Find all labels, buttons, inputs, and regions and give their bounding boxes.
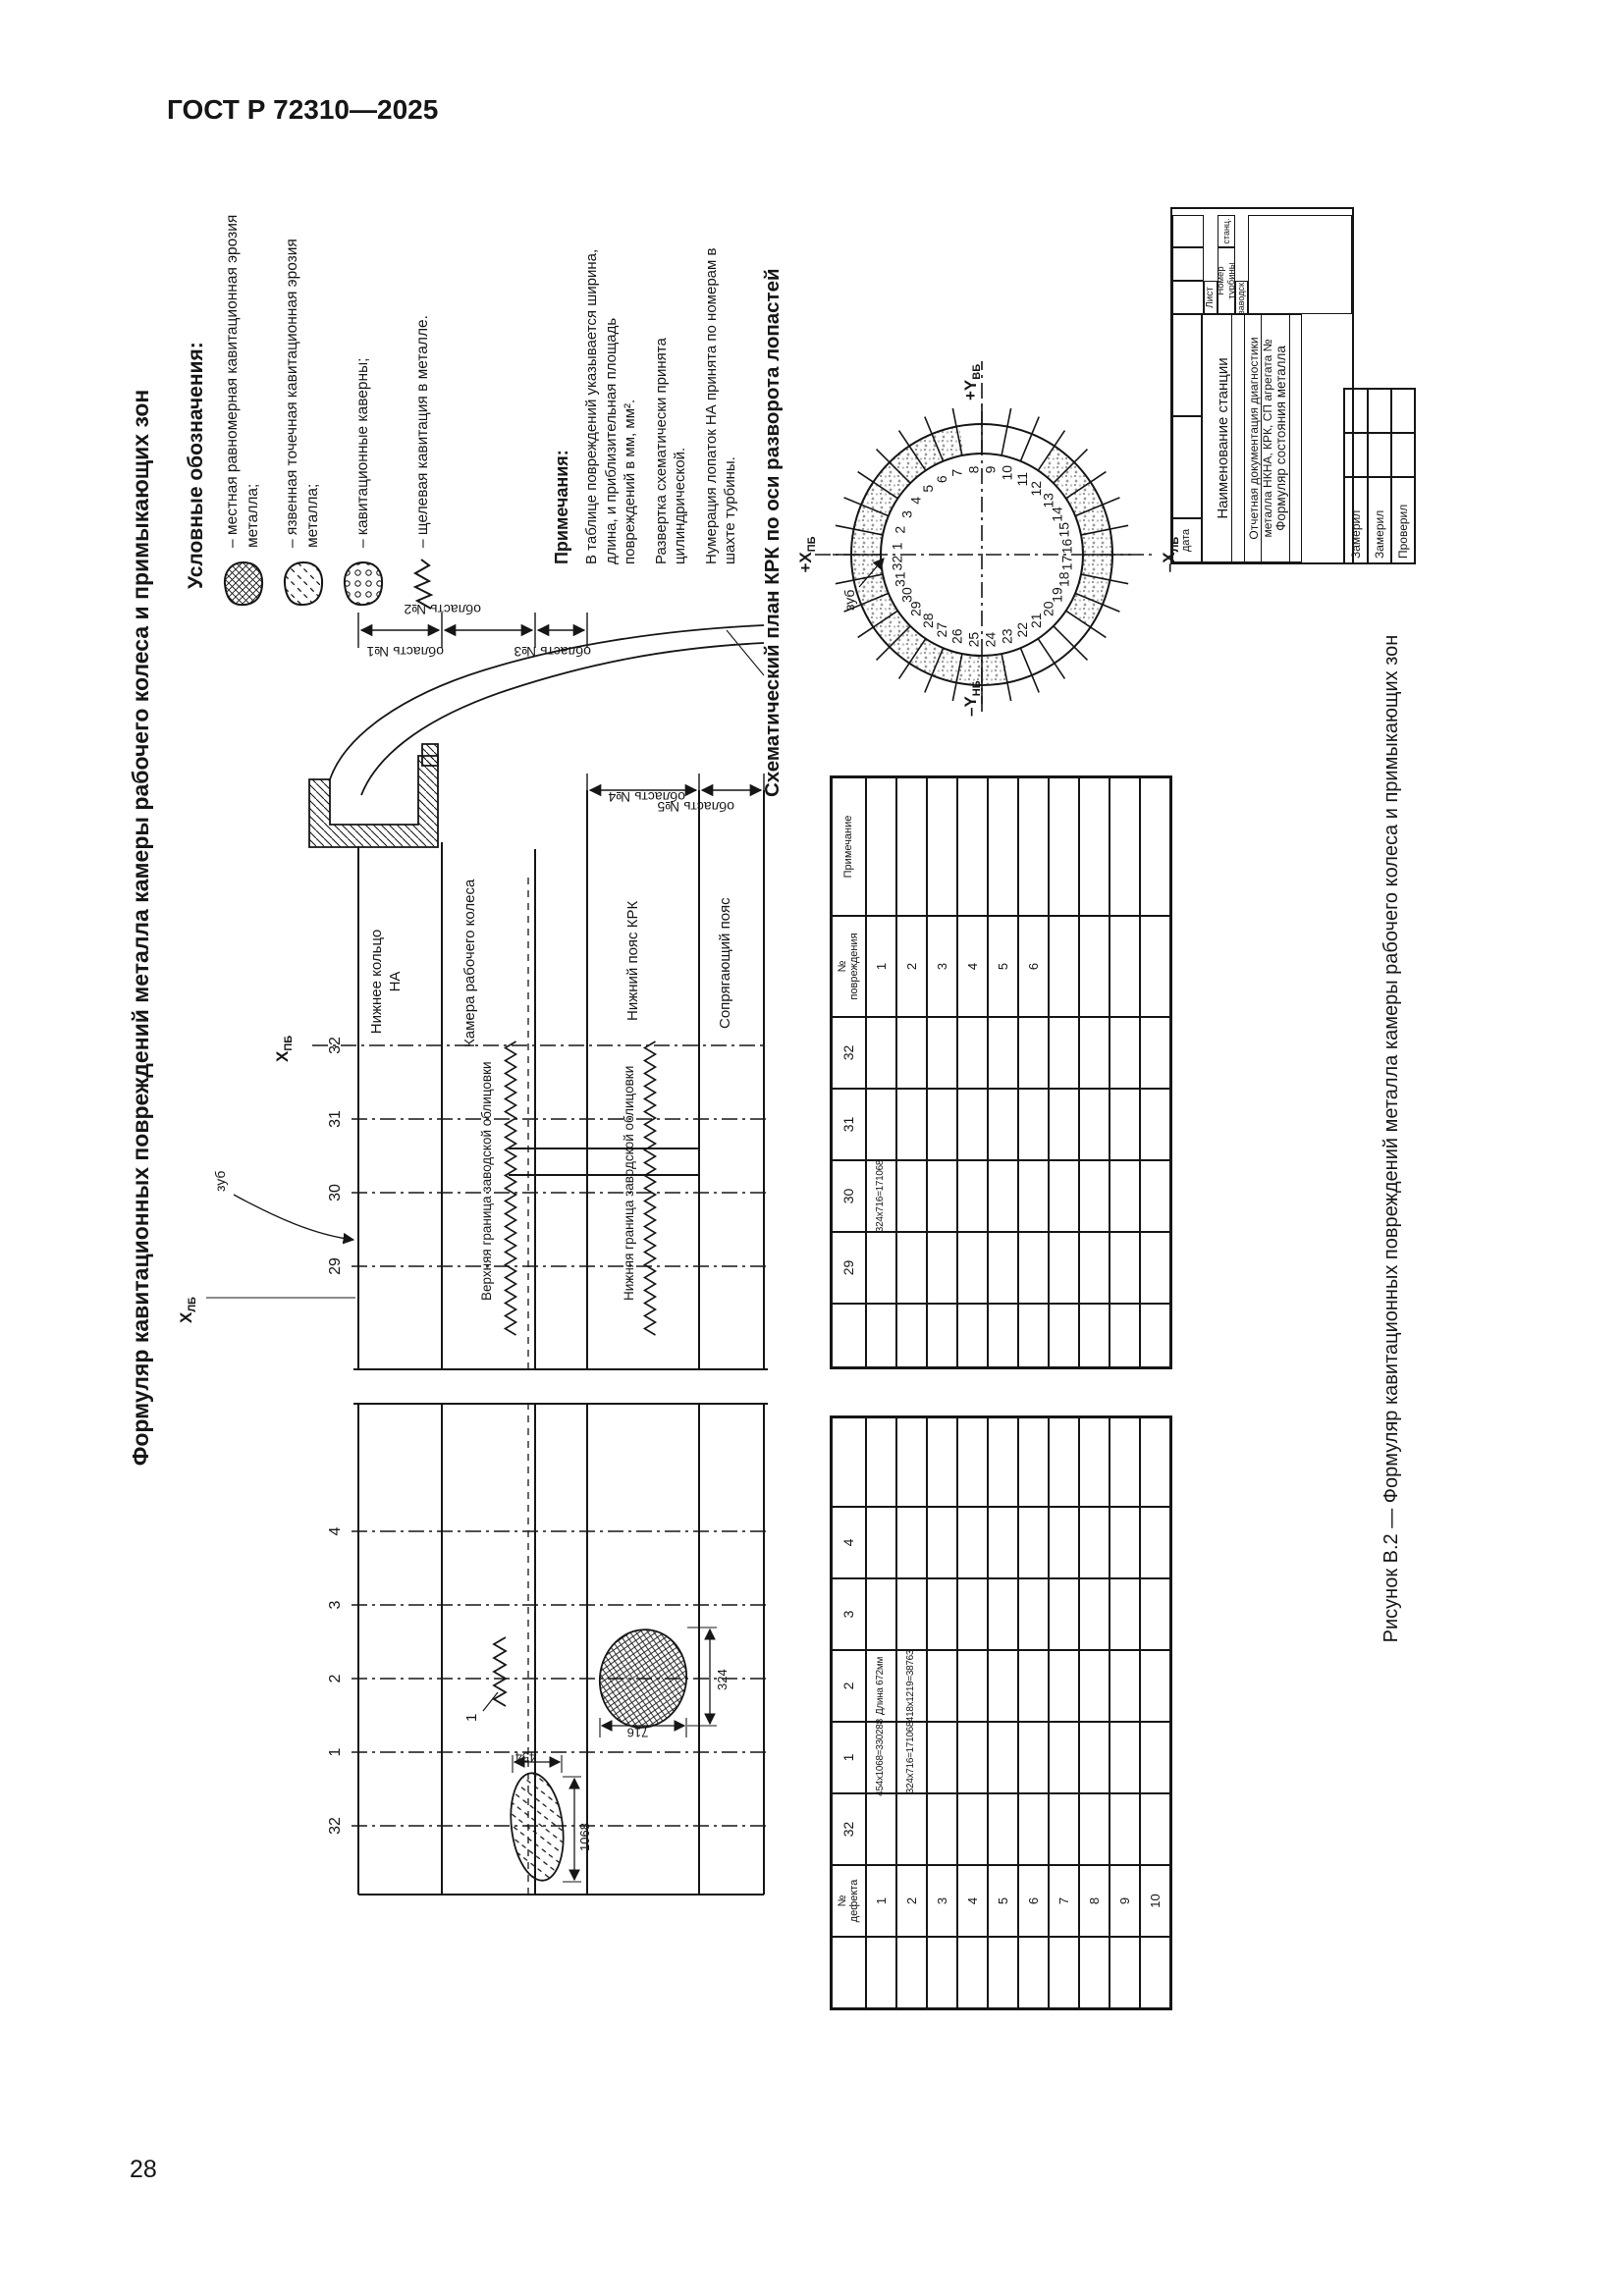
table-cell — [1018, 1160, 1049, 1232]
blade-number: 1 — [327, 1733, 345, 1772]
table-cell — [957, 1793, 988, 1865]
legend-item: – щелевая кавитация в металле. — [402, 198, 445, 611]
table-cell — [1140, 1089, 1170, 1160]
svg-text:+YВБ: +YВБ — [961, 364, 983, 400]
table-cell — [1049, 1017, 1079, 1089]
table-cell — [1079, 916, 1110, 1017]
stamp-empty-cell — [1172, 247, 1204, 281]
table-cell — [1140, 1232, 1170, 1304]
table-cell — [988, 1017, 1018, 1089]
table-cell — [957, 1017, 988, 1089]
dim-1068: 1068 — [577, 1823, 592, 1851]
table-cell — [896, 1937, 927, 2008]
table-cell: 7 — [1049, 1865, 1079, 1937]
table-header-cell: 30 — [832, 1160, 866, 1232]
table-cell — [957, 1722, 988, 1793]
sign-row-label: Замерил — [1344, 477, 1368, 563]
table-cell — [957, 1417, 988, 1507]
table-cell — [1140, 1650, 1170, 1722]
table-cell — [957, 1937, 988, 2008]
legend: Условные обозначения: – местная равномер… — [185, 198, 461, 611]
blade-number: 2 — [327, 1659, 345, 1698]
sign-row-label: Замерил — [1368, 477, 1391, 563]
table-cell — [866, 1017, 896, 1089]
dim-324: 324 — [715, 1669, 730, 1690]
table-cell — [1049, 1160, 1079, 1232]
table-cell — [1079, 1578, 1110, 1650]
band-label-chamber: Камера рабочего колеса — [461, 880, 478, 1047]
stamp-sheet-label: Лист — [1204, 281, 1218, 314]
document-page: ГОСТ Р 72310—2025 28 — [0, 0, 1624, 2296]
table-cell — [1049, 1650, 1079, 1722]
table-cell — [957, 1232, 988, 1304]
crosshatch-blob-icon — [222, 558, 265, 611]
table-cell — [927, 1937, 957, 2008]
ring-blade-number: 15 — [1056, 522, 1071, 538]
sign-empty-cell — [1391, 433, 1415, 477]
table-cell — [1079, 1017, 1110, 1089]
table-cell — [1140, 916, 1170, 1017]
band-label-ring: Нижнее кольцо НА — [368, 923, 406, 1041]
table-header-cell: Примечание — [832, 777, 866, 916]
stamp-zavod-label: заводск. — [1235, 281, 1248, 314]
legend-item-label: – щелевая кавитация в металле. — [413, 315, 434, 548]
ring-blade-number: 21 — [1028, 613, 1044, 628]
legend-item: – местная равномерная кавитационная эроз… — [222, 198, 265, 611]
table-cell — [957, 1160, 988, 1232]
ring-blade-number: 19 — [1050, 587, 1065, 603]
ring-blade-number: 2 — [893, 526, 908, 534]
figure-title: Формуляр кавитационных повреждений метал… — [128, 226, 154, 1629]
table-cell: 6 — [1018, 1865, 1049, 1937]
svg-text:–YНБ: –YНБ — [961, 680, 983, 717]
gost-header: ГОСТ Р 72310—2025 — [167, 94, 438, 126]
table-cell — [1110, 1650, 1140, 1722]
table-cell — [866, 1232, 896, 1304]
dev-axis-left-label: ХЛБ — [177, 1297, 198, 1323]
right-damage-table: 29303132№ поврежденияПримечание324х716=1… — [830, 775, 1172, 1369]
note-item: Нумерация лопаток НА принята по номерам … — [702, 226, 740, 564]
stamp-turbine-label: Номер турбины — [1218, 247, 1235, 314]
table-cell: 1 — [866, 916, 896, 1017]
ring-blade-number: 27 — [934, 622, 949, 638]
title-block: дата Наименование станции Отчетная докум… — [1170, 207, 1354, 564]
table-cell — [1140, 1017, 1170, 1089]
table-cell — [988, 1937, 1018, 2008]
table-cell — [1110, 1160, 1140, 1232]
table-cell — [988, 1722, 1018, 1793]
legend-item-label: – кавитационные каверны; — [353, 357, 374, 548]
stamp-form-label: Формуляр состояния металла — [1261, 314, 1302, 562]
table-cell: 418х1219=38763 — [896, 1650, 927, 1722]
sign-row-label: Проверил — [1391, 477, 1415, 563]
blade-number: 4 — [327, 1512, 345, 1551]
table-cell — [896, 777, 927, 916]
ring-sector-tick — [1020, 648, 1039, 692]
stamp-empty-cell — [1172, 281, 1204, 314]
table-cell — [957, 777, 988, 916]
table-cell — [896, 1232, 927, 1304]
table-cell — [1110, 1089, 1140, 1160]
stamp-empty-cell — [1172, 416, 1202, 518]
dim-716: 716 — [627, 1726, 649, 1740]
ring-blade-number: 9 — [983, 465, 999, 473]
table-cell — [1140, 1722, 1170, 1793]
table-header-cell: 29 — [832, 1232, 866, 1304]
table-cell — [927, 1650, 957, 1722]
table-cell — [927, 777, 957, 916]
table-cell — [988, 1089, 1018, 1160]
zone-label-2: область №2 — [391, 602, 481, 617]
stamp-date-label: дата — [1172, 518, 1202, 562]
zone-label-5: область №5 — [644, 799, 734, 815]
table-cell — [1079, 1507, 1110, 1578]
table-cell — [1049, 1578, 1079, 1650]
table-cell — [1110, 1507, 1140, 1578]
legend-item: – язвенная точечная кавитационная эрозия… — [282, 198, 325, 611]
ring-blade-number: 31 — [893, 571, 908, 587]
defect-callout-1: 1 — [463, 1714, 480, 1722]
damage-blob-a — [505, 1755, 581, 1884]
blade-number: 32 — [327, 1026, 345, 1065]
table-cell — [1110, 1722, 1140, 1793]
table-header-cell: № повреждения — [832, 916, 866, 1017]
table-cell — [1110, 1417, 1140, 1507]
table-cell: 1 — [866, 1865, 896, 1937]
table-cell — [957, 1304, 988, 1367]
table-cell — [1110, 1793, 1140, 1865]
table-cell — [1110, 1937, 1140, 2008]
table-header-cell: 4 — [832, 1507, 866, 1578]
table-cell — [1049, 1507, 1079, 1578]
table-cell — [957, 1650, 988, 1722]
sign-empty-cell — [1391, 389, 1415, 433]
table-cell — [1110, 916, 1140, 1017]
table-cell — [1140, 1793, 1170, 1865]
table-cell: 10 — [1140, 1865, 1170, 1937]
ring-blade-number: 25 — [965, 632, 981, 648]
ring-blade-number: 14 — [1050, 507, 1065, 522]
ring-blade-number: 13 — [1040, 493, 1056, 508]
band-label-mating-belt: Сопрягающий пояс — [717, 897, 733, 1029]
table-cell — [866, 1937, 896, 2008]
table-cell — [988, 1160, 1018, 1232]
ring-blade-number: 1 — [889, 542, 904, 550]
stamp-empty-cell — [1248, 215, 1352, 314]
table-cell: 4 — [957, 1865, 988, 1937]
legend-item-label: – язвенная точечная кавитационная эрозия… — [283, 198, 324, 548]
table-cell: 3 — [927, 916, 957, 1017]
zone-label-3: область №3 — [501, 644, 591, 660]
table-cell — [1110, 777, 1140, 916]
table-header-cell: 1 — [832, 1722, 866, 1793]
table-cell — [1049, 1417, 1079, 1507]
notes: Примечания: В таблице повреждений указыв… — [552, 226, 752, 564]
table-cell — [896, 1578, 927, 1650]
stamp-empty-cell — [1172, 314, 1202, 416]
table-cell — [1140, 1937, 1170, 2008]
table-cell — [1140, 1417, 1170, 1507]
table-cell: Длина 672мм — [866, 1650, 896, 1722]
table-cell — [927, 1793, 957, 1865]
figure-caption: Рисунок В.2 — Формуляр кавитационных пов… — [1380, 432, 1403, 1845]
dev-tooth-label: зуб — [212, 1171, 228, 1192]
table-cell — [896, 1417, 927, 1507]
table-cell — [1018, 1578, 1049, 1650]
table-cell: 3 — [927, 1865, 957, 1937]
table-cell — [1018, 1722, 1049, 1793]
ring-blade-number: 26 — [949, 628, 965, 644]
table-cell — [927, 1722, 957, 1793]
ring-blade-number: 24 — [983, 632, 999, 648]
table-cell — [1079, 1160, 1110, 1232]
upper-facing-boundary-label: Верхняя граница заводской облицовки — [479, 1061, 494, 1301]
table-cell — [896, 1160, 927, 1232]
table-header-cell: 32 — [832, 1017, 866, 1089]
blade-number: 31 — [327, 1099, 345, 1139]
table-cell — [988, 777, 1018, 916]
table-cell — [927, 1507, 957, 1578]
table-cell — [927, 1232, 957, 1304]
blade-ring-plan: 1234567891011121314151617181920212223242… — [795, 329, 1188, 741]
ring-blade-number: 30 — [898, 587, 914, 603]
note-item: Развертка схематически принята цилиндрич… — [652, 226, 690, 564]
table-cell — [988, 1650, 1018, 1722]
table-cell — [896, 1507, 927, 1578]
blade-number: 29 — [327, 1247, 345, 1286]
note-item: В таблице повреждений указывается ширина… — [582, 226, 640, 564]
table-cell — [1110, 1232, 1140, 1304]
table-cell — [988, 1417, 1018, 1507]
ring-blade-number: 23 — [999, 628, 1014, 644]
lower-facing-boundary-label: Нижняя граница заводской облицовки — [622, 1066, 636, 1301]
table-header-cell — [832, 1417, 866, 1507]
damage-blob-b — [592, 1623, 717, 1737]
table-cell — [988, 1793, 1018, 1865]
table-header-cell: 31 — [832, 1089, 866, 1160]
table-cell: 324х716=171068 — [896, 1722, 927, 1793]
table-cell — [957, 1578, 988, 1650]
table-cell — [866, 1578, 896, 1650]
table-header-cell — [832, 1304, 866, 1367]
ring-blade-number: 7 — [949, 469, 965, 477]
table-cell: 2 — [896, 1865, 927, 1937]
ring-blade-number: 10 — [999, 465, 1014, 481]
table-cell — [1049, 1304, 1079, 1367]
table-cell — [1018, 1793, 1049, 1865]
table-cell — [1140, 1507, 1170, 1578]
dim-454: 454 — [515, 1750, 537, 1765]
table-cell — [1079, 1937, 1110, 2008]
table-cell — [1140, 777, 1170, 916]
table-cell — [1079, 1232, 1110, 1304]
notes-heading: Примечания: — [552, 226, 572, 564]
legend-item: – кавитационные каверны; — [342, 198, 385, 611]
table-cell — [927, 1160, 957, 1232]
sign-empty-cell — [1368, 389, 1391, 433]
table-cell — [896, 1304, 927, 1367]
table-cell — [866, 1793, 896, 1865]
table-cell — [1079, 1722, 1110, 1793]
ring-blade-number: 16 — [1059, 538, 1075, 554]
svg-text:+ХПБ: +ХПБ — [796, 536, 818, 572]
ring-blade-number: 6 — [934, 475, 949, 483]
stamp-empty-cell — [1172, 215, 1204, 247]
table-cell — [957, 1507, 988, 1578]
table-cell — [866, 1304, 896, 1367]
table-cell — [1018, 1089, 1049, 1160]
ring-blade-number: 17 — [1059, 556, 1075, 571]
table-header-cell: 3 — [832, 1578, 866, 1650]
table-cell — [1049, 916, 1079, 1017]
ring-blade-number: 5 — [920, 485, 936, 493]
band-label-lower-belt: Нижний пояс КРК — [624, 901, 641, 1021]
table-cell — [866, 1507, 896, 1578]
blade-number: 32 — [327, 1806, 345, 1845]
table-cell: 9 — [1110, 1865, 1140, 1937]
table-cell — [1079, 1089, 1110, 1160]
blade-number: 3 — [327, 1585, 345, 1625]
table-cell: 4 — [957, 916, 988, 1017]
dev-axis-right-label: ХПБ — [273, 1036, 295, 1062]
svg-text:зуб: зуб — [841, 590, 857, 611]
table-cell — [1110, 1304, 1140, 1367]
pitting-blob-icon — [282, 558, 325, 611]
table-cell — [1049, 1937, 1079, 2008]
ring-blade-number: 3 — [898, 510, 914, 518]
caverns-blob-icon — [342, 558, 385, 611]
table-cell — [927, 1017, 957, 1089]
table-cell — [1018, 1232, 1049, 1304]
table-cell — [1018, 777, 1049, 916]
ring-blade-number: 18 — [1056, 571, 1071, 587]
table-cell — [866, 777, 896, 916]
legend-item-label: – местная равномерная кавитационная эроз… — [223, 198, 264, 548]
table-cell — [1079, 777, 1110, 916]
table-cell — [957, 1089, 988, 1160]
table-cell — [1018, 1304, 1049, 1367]
table-cell — [927, 1578, 957, 1650]
table-cell — [1018, 1017, 1049, 1089]
ring-blade-number: 8 — [965, 465, 981, 473]
table-cell — [927, 1089, 957, 1160]
table-cell — [988, 1232, 1018, 1304]
legend-heading: Условные обозначения: — [185, 198, 208, 589]
table-cell — [1110, 1578, 1140, 1650]
signature-rows: Замерил Замерил Проверил — [1343, 388, 1416, 564]
zone-label-1: область №1 — [353, 644, 444, 660]
table-cell — [1018, 1937, 1049, 2008]
ring-sector-tick — [1054, 626, 1088, 661]
table-cell — [1049, 1793, 1079, 1865]
table-cell — [1079, 1650, 1110, 1722]
table-cell — [1018, 1417, 1049, 1507]
table-cell — [1018, 1650, 1049, 1722]
table-cell — [896, 1793, 927, 1865]
blade-number: 30 — [327, 1173, 345, 1212]
table-cell: 2 — [896, 916, 927, 1017]
sign-empty-cell — [1344, 433, 1368, 477]
table-cell — [866, 1417, 896, 1507]
left-defect-table: № дефекта3212341454х1068=330288Длина 672… — [830, 1415, 1172, 2010]
table-cell — [988, 1507, 1018, 1578]
stamp-stanc-label: станц. — [1218, 215, 1235, 247]
sign-empty-cell — [1368, 433, 1391, 477]
table-cell — [1140, 1304, 1170, 1367]
table-cell — [988, 1304, 1018, 1367]
table-cell — [1018, 1507, 1049, 1578]
table-cell — [927, 1417, 957, 1507]
table-cell — [1079, 1417, 1110, 1507]
table-cell — [866, 1089, 896, 1160]
table-header-cell: 2 — [832, 1650, 866, 1722]
table-cell — [1079, 1793, 1110, 1865]
sign-empty-cell — [1344, 389, 1368, 433]
table-cell: 8 — [1079, 1865, 1110, 1937]
ring-sector-tick — [1001, 408, 1011, 455]
ring-blade-number: 22 — [1014, 622, 1030, 638]
table-cell — [1049, 1089, 1079, 1160]
table-cell — [1140, 1578, 1170, 1650]
rotated-figure: Формуляр кавитационных повреждений метал… — [128, 196, 1492, 2268]
plan-heading: Схематический план КРК по оси разворота … — [761, 196, 785, 797]
ring-blade-number: 32 — [889, 556, 904, 571]
table-cell — [1110, 1017, 1140, 1089]
ring-blade-number: 4 — [908, 497, 924, 505]
table-cell — [927, 1304, 957, 1367]
table-cell — [896, 1089, 927, 1160]
table-cell — [1140, 1160, 1170, 1232]
table-cell — [896, 1017, 927, 1089]
table-header-cell — [832, 1937, 866, 2008]
ring-sector-tick — [1020, 417, 1039, 461]
table-cell: 5 — [988, 916, 1018, 1017]
table-cell — [1049, 1232, 1079, 1304]
table-cell: 454х1068=330288 — [866, 1722, 896, 1793]
table-header-cell: 32 — [832, 1793, 866, 1865]
table-cell: 5 — [988, 1865, 1018, 1937]
table-cell — [1049, 777, 1079, 916]
table-cell: 6 — [1018, 916, 1049, 1017]
table-cell — [988, 1578, 1018, 1650]
table-cell: 324х716=171068 — [866, 1160, 896, 1232]
table-header-cell: № дефекта — [832, 1865, 866, 1937]
table-cell — [1079, 1304, 1110, 1367]
table-cell — [1049, 1722, 1079, 1793]
